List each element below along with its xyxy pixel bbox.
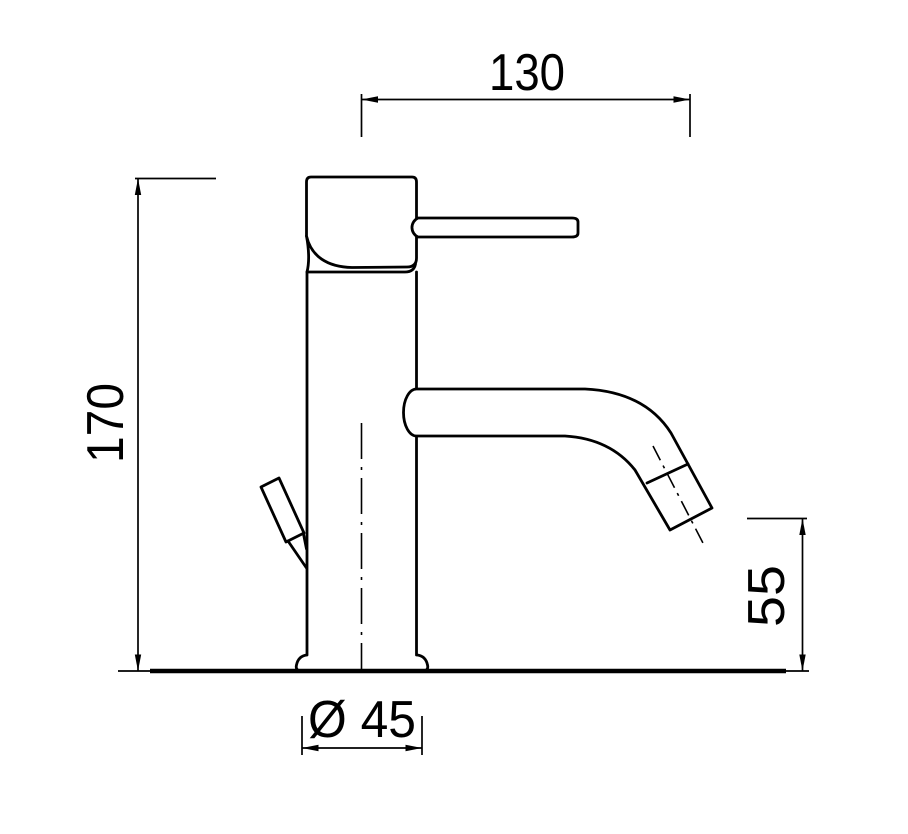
dimension-label-spout-reach: 130 [489,44,565,102]
arrowhead-top [135,179,141,196]
arrowhead-right [674,96,691,103]
spout [404,389,712,530]
body-left-edge [307,236,309,655]
dimension-overall-height: 170 [77,179,216,672]
dimension-label-base-diameter: Ø 45 [308,691,416,749]
arrowhead-bottom [135,655,141,672]
dimension-outlet-height: 55 [738,519,807,672]
arrowhead-top [799,519,805,536]
dimension-spout-reach: 130 [362,44,691,137]
arrowhead-left [362,96,379,103]
dimension-label-overall-height: 170 [77,383,135,463]
drawing-sheet: 130 170 55 Ø 45 [0,0,908,834]
side-waste-lever-knob [261,478,304,542]
faucet-figure [118,177,809,671]
dimension-base-diameter: Ø 45 [302,691,422,755]
dimension-label-outlet-height: 55 [738,565,796,627]
cartridge-cap [307,177,417,268]
arrowhead-bottom [799,655,805,672]
handle-lever [412,218,578,237]
technical-drawing-canvas: 130 170 55 Ø 45 [0,0,908,834]
